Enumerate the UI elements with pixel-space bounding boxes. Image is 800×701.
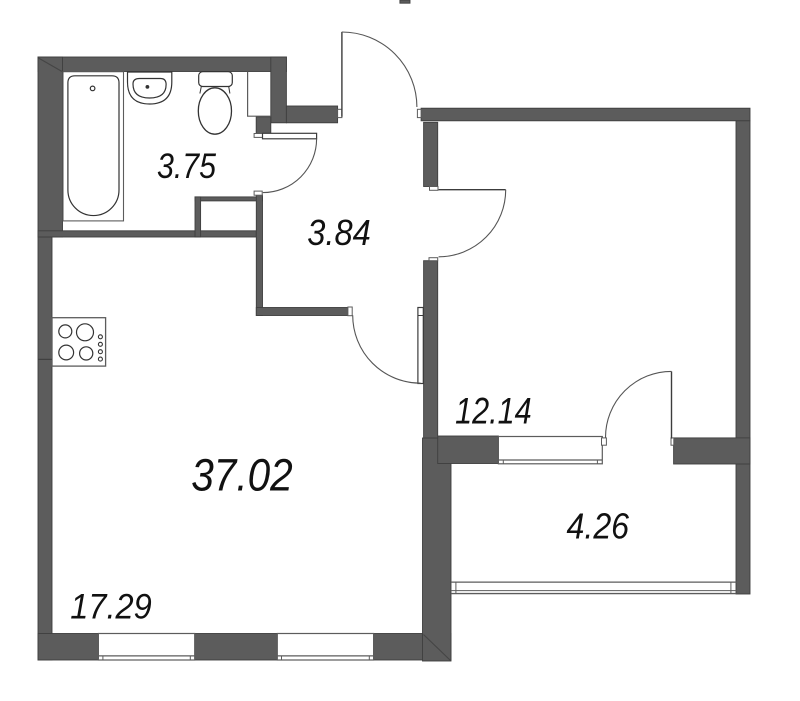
svg-text:17.29: 17.29 xyxy=(70,587,152,626)
svg-text:4.26: 4.26 xyxy=(567,506,630,547)
svg-text:12.14: 12.14 xyxy=(455,390,532,432)
svg-text:37.02: 37.02 xyxy=(191,450,293,501)
svg-text:3.84: 3.84 xyxy=(307,212,371,253)
svg-text:3.75: 3.75 xyxy=(157,147,216,186)
